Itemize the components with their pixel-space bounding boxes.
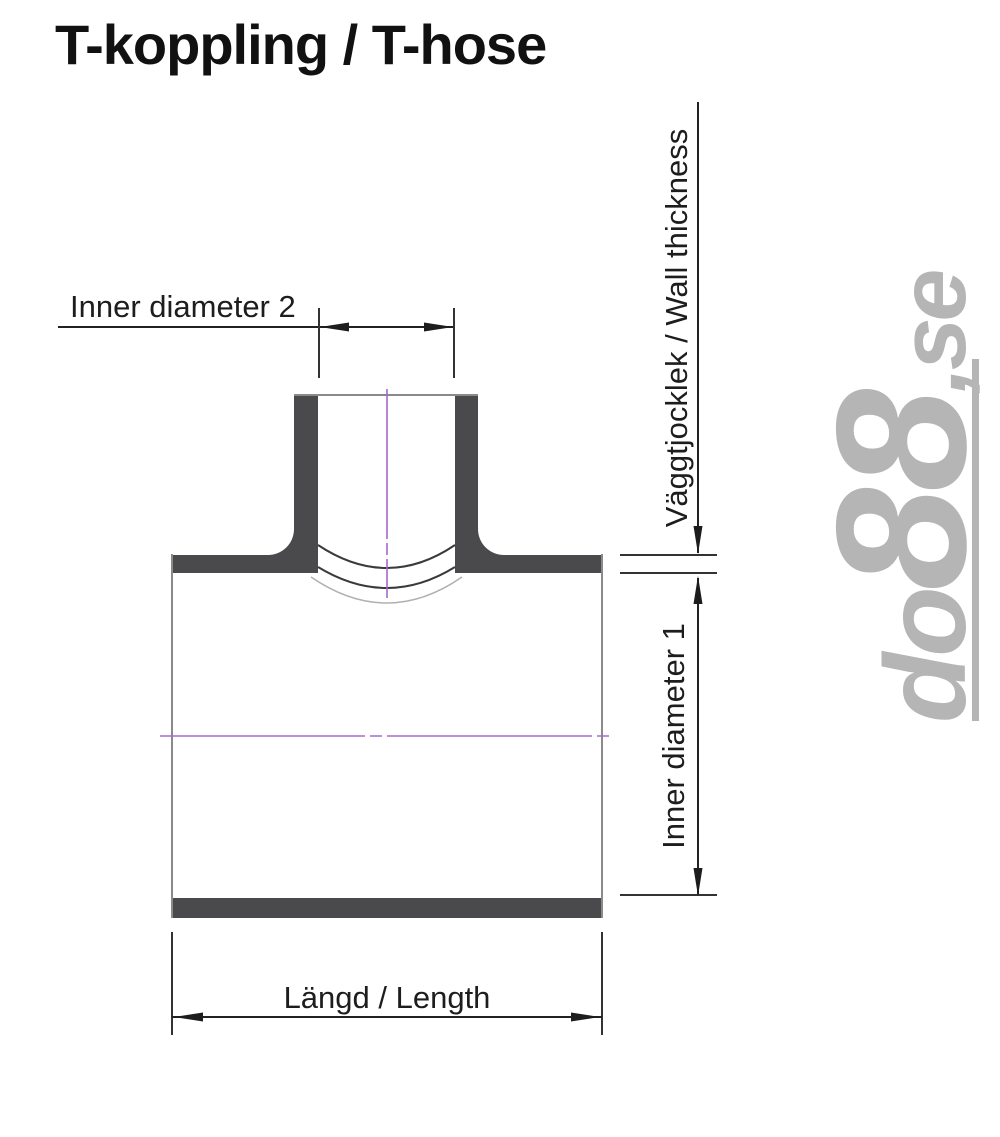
arrow-up-icon [694,576,703,604]
wall-thickness-label: Väggtjocklek / Wall thickness [659,129,694,528]
watermark-logo: do88,se [799,270,1000,723]
length-label: Längd / Length [284,980,491,1015]
arrow-down-icon [694,526,703,554]
page-title: T-koppling / T-hose [55,13,546,76]
pipe-wall-right [455,396,602,573]
t-hose-diagram: T-koppling / T-hose do88,se Inner diamet… [0,0,1000,1137]
watermark-underline [972,359,979,721]
inner-diameter-1-label: Inner diameter 1 [656,623,691,849]
arrow-right-icon [571,1013,600,1022]
watermark-88: 88 [799,389,1000,591]
pipe-wall-bottom [172,898,602,918]
arrow-down-icon [694,868,703,896]
arrow-left-icon [174,1013,203,1022]
arrow-right-icon [424,323,453,332]
arrow-left-icon [320,323,349,332]
pipe-wall-left [172,396,318,573]
dim-inner-diameter-2: Inner diameter 2 [58,289,454,378]
watermark-se: ,se [880,270,986,393]
watermark-text: do88,se [799,270,1000,723]
technical-drawing-page: T-koppling / T-hose do88,se Inner diamet… [0,0,1000,1137]
dim-inner-diameter-1: Inner diameter 1 [620,576,717,896]
dim-wall-thickness: Väggtjocklek / Wall thickness [620,102,717,573]
dim-length: Längd / Length [172,932,602,1035]
inner-diameter-2-label: Inner diameter 2 [70,289,296,324]
watermark-do: do [862,590,990,723]
